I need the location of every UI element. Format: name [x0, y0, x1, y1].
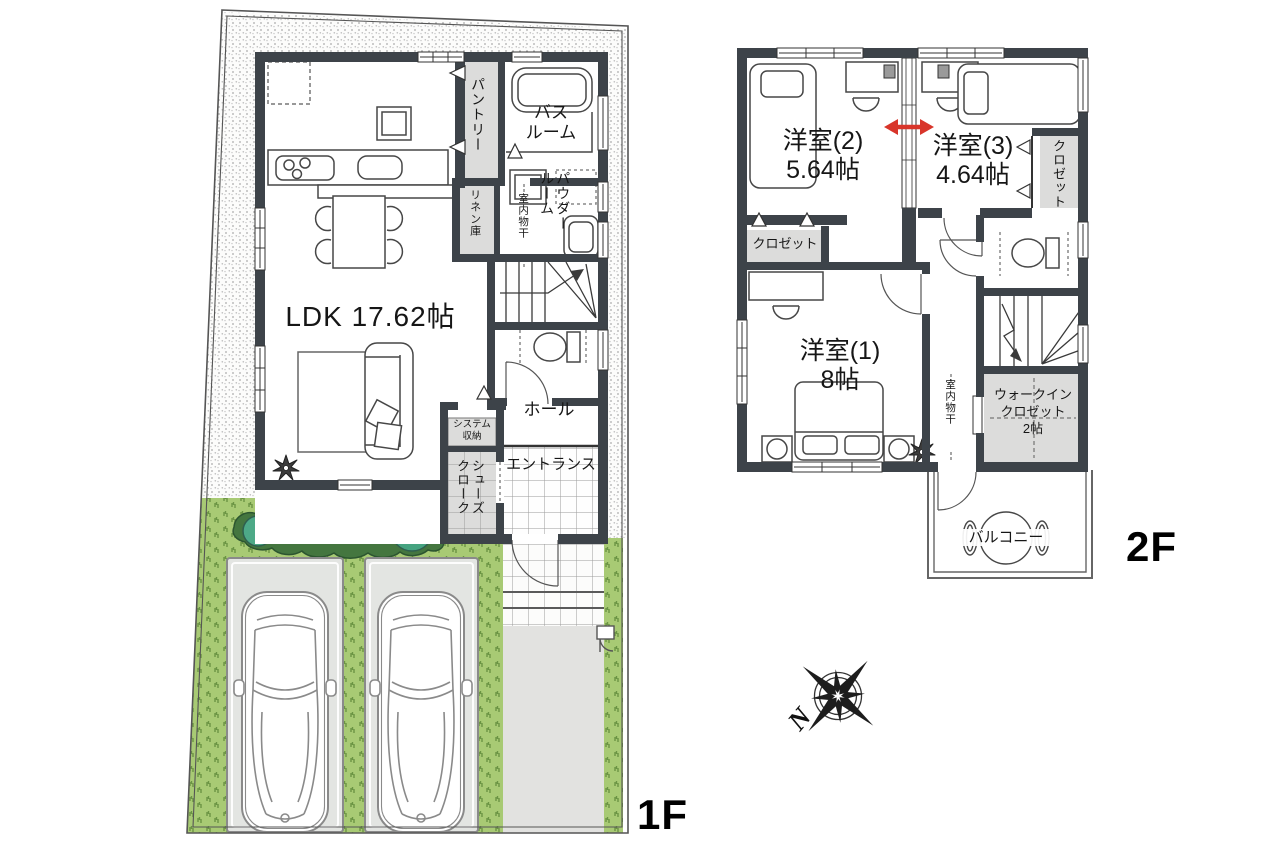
room2-name: 洋室(2): [744, 127, 902, 156]
indoor-drying-label-1f: 室内物干: [517, 193, 529, 267]
room3-label: 洋室(3)4.64帖: [913, 132, 1033, 190]
room1-size: 8帖: [764, 366, 916, 395]
hall-label: ホール: [502, 400, 596, 420]
balcony-label: バルコニー: [955, 529, 1057, 546]
nightstand-icon: [762, 436, 792, 462]
compass-north-label: N: [781, 700, 818, 736]
shoes-closet-label: シューズ クローク: [454, 459, 484, 537]
room3-size: 4.64帖: [913, 161, 1033, 190]
front-door-gap: [512, 534, 558, 544]
window: [1078, 222, 1088, 258]
room2-label: 洋室(2)5.64帖: [744, 127, 902, 185]
nightstand-icon: [884, 436, 914, 462]
dining-table-icon: [333, 196, 385, 268]
floor-plan-drawing: N: [0, 0, 1280, 850]
window: [598, 330, 608, 370]
window: [512, 52, 542, 62]
entrance-label: エントランス: [504, 456, 598, 473]
wic-door-leaf: [973, 396, 982, 434]
closet-right-label: クロゼット: [1050, 139, 1065, 213]
window: [598, 222, 608, 258]
bathroom-label: バス ルーム: [506, 103, 596, 142]
window: [1078, 58, 1088, 112]
window: [792, 462, 882, 472]
pantry-label: パントリー: [470, 77, 486, 179]
indoor-drying-label-2f: 室内物干: [944, 379, 956, 463]
walk-in-closet-label: ウォークイン クロゼット 2帖: [985, 387, 1081, 438]
car-icon: [234, 592, 336, 832]
floor2-title: 2F: [1126, 523, 1177, 571]
window: [255, 208, 265, 270]
floor-plan-page: N LDK 17.62帖 パントリー バス ルーム リネン庫 パウダー ルーム …: [0, 0, 1280, 850]
room1-label: 洋室(1)8帖: [764, 337, 916, 395]
cushion-icon: [374, 422, 401, 449]
window: [1078, 325, 1088, 363]
system-storage-label: システム 収納: [447, 419, 497, 443]
window: [255, 346, 265, 412]
room1-name: 洋室(1): [764, 337, 916, 366]
porch-tiles: [503, 538, 604, 626]
floor1-title: 1F: [637, 791, 688, 839]
window: [338, 480, 372, 490]
powder-room-label: パウダー ルーム: [539, 171, 571, 255]
window: [598, 96, 608, 150]
room3-name: 洋室(3): [913, 132, 1033, 161]
closet-left-label: クロゼット: [745, 237, 825, 252]
window: [777, 48, 863, 58]
driveway: [503, 626, 604, 833]
room2-size: 5.64帖: [744, 156, 902, 185]
window: [418, 52, 464, 62]
compass-icon: N: [773, 631, 903, 761]
linen-label: リネン庫: [468, 189, 481, 251]
window: [918, 48, 1004, 58]
ldk-label: LDK 17.62帖: [268, 301, 473, 333]
car-icon: [370, 592, 472, 832]
window: [737, 320, 747, 404]
bed-icon-room3: [958, 64, 1080, 124]
window: [598, 182, 608, 212]
